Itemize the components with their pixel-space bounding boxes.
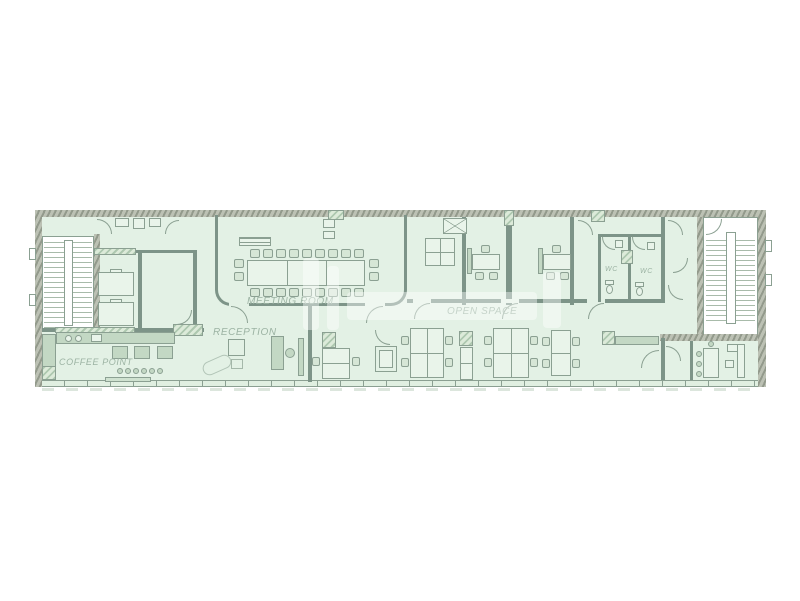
- column-hatched: [328, 210, 344, 220]
- reception-panel: [298, 338, 304, 376]
- chair: [572, 337, 580, 346]
- chair: [560, 272, 569, 280]
- side-table: [725, 360, 734, 368]
- coffee-cabinet: [42, 366, 56, 380]
- facade-tab-left-1: [29, 248, 36, 260]
- desk-pair: [322, 348, 350, 379]
- desk: [472, 254, 500, 270]
- stairs-right-stringer: [726, 232, 736, 324]
- chair: [302, 249, 312, 258]
- partition: [138, 250, 142, 330]
- partition: [136, 250, 195, 253]
- closet: [149, 218, 161, 227]
- column-hatched: [504, 210, 514, 226]
- chair: [530, 336, 538, 345]
- closet: [133, 218, 145, 229]
- chair: [289, 249, 299, 258]
- chair: [484, 336, 492, 345]
- chair: [352, 357, 360, 366]
- cabinet-hatched: [94, 248, 136, 255]
- chair: [696, 371, 702, 377]
- coffee-counter-top: [56, 332, 175, 344]
- floor-plan: COFFEE POINT: [35, 210, 772, 392]
- stool: [149, 368, 155, 374]
- partition: [690, 341, 693, 380]
- meeting-room-label: MEETING ROOM: [247, 297, 334, 307]
- chair: [315, 249, 325, 258]
- closet: [115, 218, 129, 227]
- wc-wall: [628, 234, 631, 302]
- facade-tab-left-2: [29, 294, 36, 306]
- watermark: [347, 292, 537, 320]
- coffee-table: [157, 346, 173, 359]
- facade-tab-right-2: [765, 274, 772, 286]
- cabinet-hatched: [459, 331, 473, 346]
- chair: [552, 245, 561, 253]
- chair: [445, 336, 453, 345]
- bench: [105, 377, 151, 382]
- chair: [475, 272, 484, 280]
- stool: [141, 368, 147, 374]
- wc-wall: [661, 217, 665, 303]
- stool: [117, 368, 123, 374]
- partition: [661, 338, 665, 380]
- wc-sink: [647, 242, 655, 250]
- chair: [234, 259, 244, 268]
- chair: [708, 341, 714, 347]
- partition: [193, 250, 197, 330]
- chair: [542, 359, 550, 368]
- chair: [401, 336, 409, 345]
- chair: [445, 358, 453, 367]
- booth-table: [98, 302, 134, 326]
- chair: [250, 249, 260, 258]
- wc-sink: [615, 240, 623, 248]
- desk-cluster: [410, 328, 444, 378]
- reception-label: RECEPTION: [213, 328, 277, 338]
- chair: [354, 249, 364, 258]
- booth-table: [110, 269, 122, 273]
- wall-right: [758, 210, 766, 387]
- booth-table: [98, 272, 134, 296]
- page: COFFEE POINT: [0, 0, 800, 601]
- desk-cluster: [493, 328, 529, 378]
- coffee-point-label: COFFEE POINT: [59, 358, 133, 367]
- stool: [133, 368, 139, 374]
- chair: [234, 272, 244, 281]
- cabinet-hatched: [602, 331, 615, 345]
- desk: [543, 254, 571, 270]
- chair: [328, 249, 338, 258]
- chair: [696, 361, 702, 367]
- reception-desk: [271, 336, 284, 370]
- cabinet: [460, 347, 473, 380]
- chair: [489, 272, 498, 280]
- wc-wall: [598, 234, 601, 302]
- closet: [323, 219, 335, 228]
- closet-x: [443, 218, 467, 234]
- chair: [401, 358, 409, 367]
- column-hatched: [591, 210, 605, 222]
- wc-toilet-bowl: [636, 287, 643, 296]
- wc-right-label: WC: [640, 268, 653, 275]
- closet: [323, 231, 335, 239]
- l-desk: [737, 344, 745, 378]
- desk: [703, 348, 719, 378]
- chair: [341, 249, 351, 258]
- booth-table: [110, 299, 122, 303]
- chair: [369, 272, 379, 281]
- reception-side-table: [228, 339, 245, 356]
- chair: [312, 357, 320, 366]
- wall-left: [35, 210, 42, 387]
- watermark: [543, 272, 561, 328]
- office-table: [425, 238, 455, 266]
- small-table: [379, 350, 393, 368]
- wc-left-label: WC: [605, 266, 618, 273]
- chair: [276, 249, 286, 258]
- reception-side-table: [231, 359, 243, 369]
- sink-icon: [75, 335, 82, 342]
- wc-toilet-bowl: [606, 285, 613, 294]
- sink-icon: [65, 335, 72, 342]
- counter: [615, 336, 659, 345]
- desk-pair: [551, 330, 571, 376]
- stairs-left-stringer: [64, 240, 73, 326]
- credenza: [239, 237, 271, 246]
- stool: [125, 368, 131, 374]
- cabinet-hatched: [173, 324, 203, 336]
- cabinet-hatched: [322, 332, 336, 348]
- chair: [369, 259, 379, 268]
- reception-chair: [285, 348, 295, 358]
- shaft-hatched: [621, 250, 633, 264]
- watermark: [327, 266, 339, 330]
- chair: [572, 359, 580, 368]
- facade-tab-right-1: [765, 240, 772, 252]
- stairwell-right-bottom-wall: [660, 334, 758, 341]
- chair: [696, 351, 702, 357]
- coffee-table: [134, 346, 150, 359]
- chair: [484, 358, 492, 367]
- cooktop-icon: [91, 334, 102, 342]
- watermark: [303, 258, 319, 330]
- chair: [530, 358, 538, 367]
- stool: [157, 368, 163, 374]
- chair: [542, 337, 550, 346]
- window-sill-marks: [42, 388, 758, 391]
- chair: [481, 245, 490, 253]
- chair: [263, 249, 273, 258]
